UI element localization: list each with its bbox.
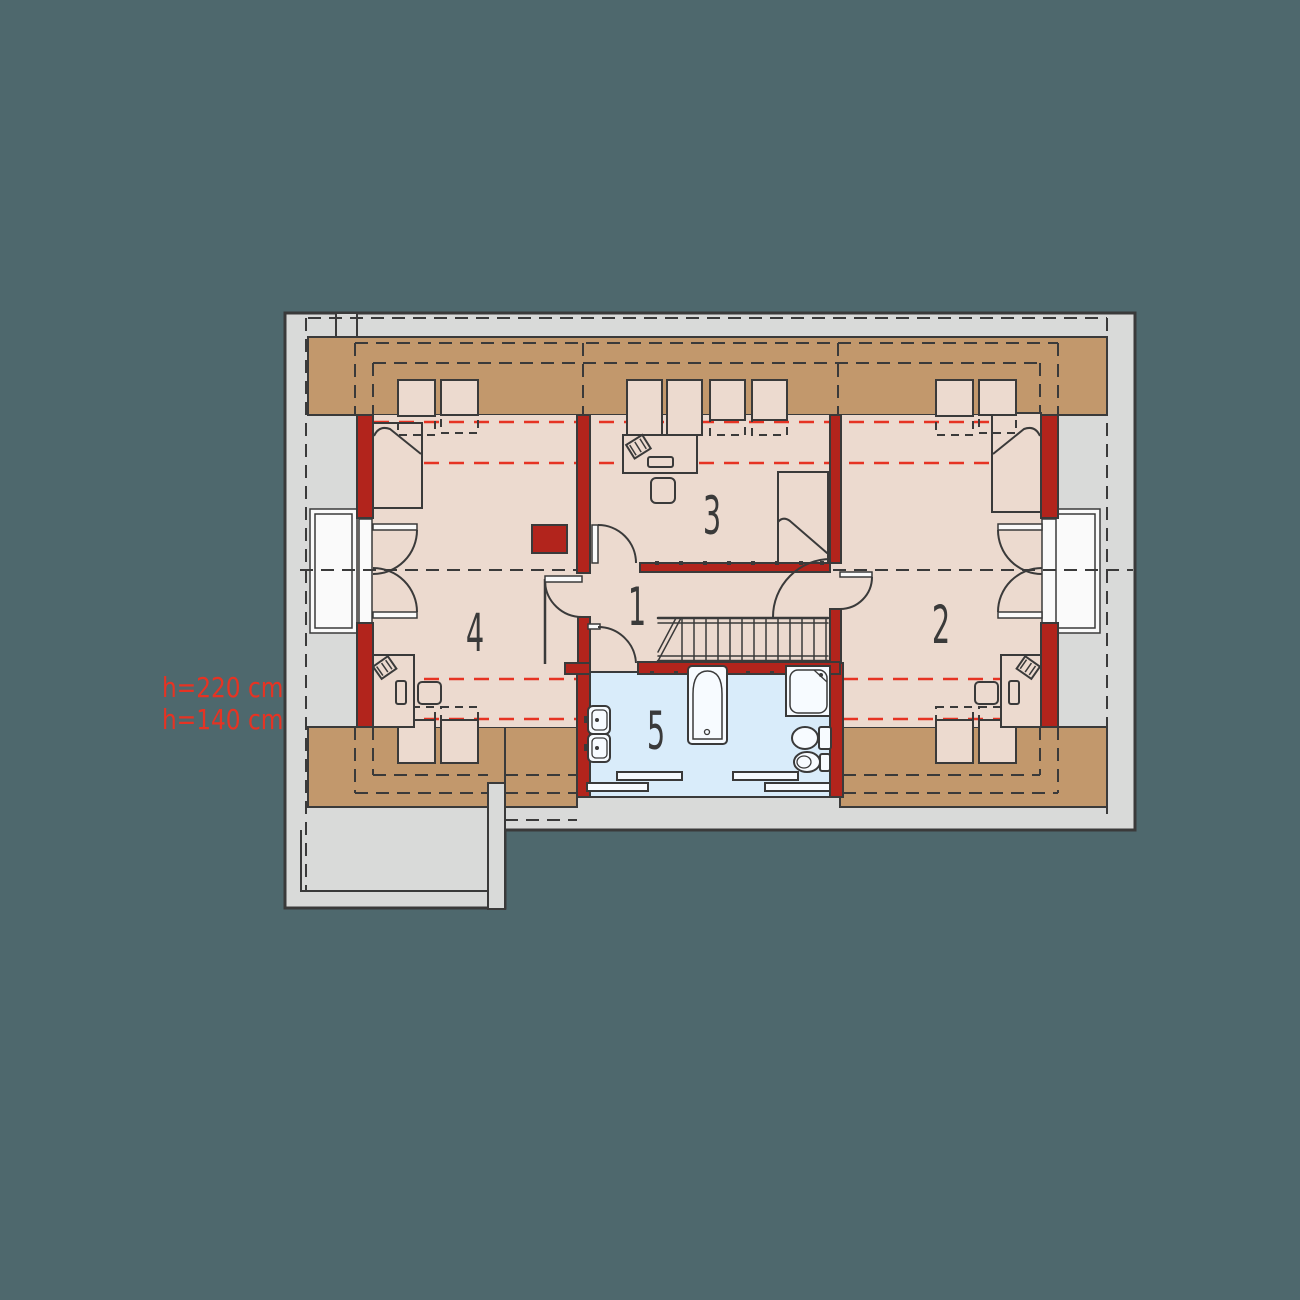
stool xyxy=(651,478,675,503)
keyboard xyxy=(648,457,673,467)
toilet xyxy=(792,727,831,749)
bed-room3 xyxy=(778,472,828,567)
height-annotations: h=220 cm h=140 cm xyxy=(162,672,283,736)
floor-plan-canvas: 1 2 3 4 5 h=220 cm h=140 cm xyxy=(0,0,1300,1300)
porch-gable-wall xyxy=(488,783,505,909)
height-label-220: h=220 cm xyxy=(162,672,283,704)
room-label-3: 3 xyxy=(703,487,721,548)
wardrobe xyxy=(441,380,478,415)
wardrobe xyxy=(398,380,435,416)
keyboard xyxy=(396,681,406,704)
wardrobe xyxy=(710,380,745,420)
chimney xyxy=(532,525,567,553)
wall-left-bottom xyxy=(357,623,373,727)
balcony-window-left xyxy=(310,509,372,633)
keyboard xyxy=(1009,681,1019,704)
wardrobe xyxy=(979,380,1016,415)
wardrobe xyxy=(936,380,973,416)
wall-bath-top-left xyxy=(565,663,590,674)
wall-right-bottom xyxy=(1041,623,1058,727)
wardrobe xyxy=(752,380,787,420)
wall-left-top xyxy=(357,415,373,518)
wardrobe xyxy=(936,720,973,763)
wall-room4-room3 xyxy=(577,415,590,573)
wardrobe xyxy=(441,720,478,763)
wall-room3-room2 xyxy=(830,415,841,563)
wall-right-top xyxy=(1041,415,1058,518)
room-label-2: 2 xyxy=(932,596,950,657)
bathtub xyxy=(688,666,727,744)
room-label-4: 4 xyxy=(466,604,484,665)
room-label-1: 1 xyxy=(628,578,646,639)
floor-plan-drawing: 1 2 3 4 5 h=220 cm h=140 cm xyxy=(0,0,1300,1300)
room-label-5: 5 xyxy=(647,702,665,763)
wardrobe xyxy=(627,380,662,435)
wall-hall-room2-stub xyxy=(830,609,841,663)
stool xyxy=(975,682,998,704)
wardrobe xyxy=(667,380,702,435)
stool xyxy=(418,682,441,704)
height-label-140: h=140 cm xyxy=(162,704,283,736)
bidet xyxy=(794,752,830,772)
shower xyxy=(786,666,830,716)
